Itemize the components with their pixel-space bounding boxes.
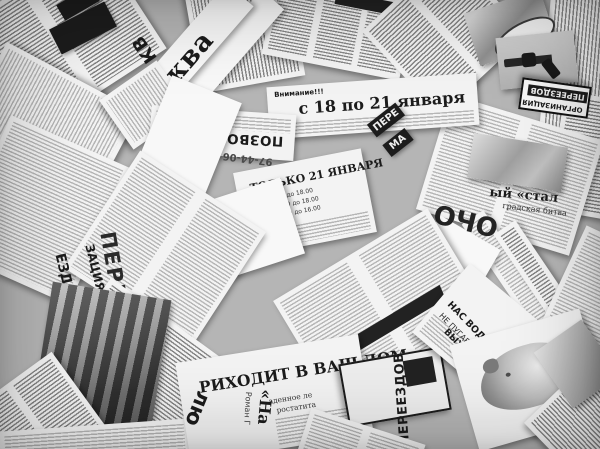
- dark-ad-label: МА: [388, 133, 409, 153]
- na-title-fragment: «На: [255, 389, 274, 426]
- revolver-grip: [541, 58, 561, 80]
- revolver-cylinder: [521, 52, 536, 67]
- newspaper-collage-photo: осква КВ ОРГАНИЗАЦИЯ ПЕРЕЕЗДОВ Внимание!…: [0, 0, 600, 449]
- roman-byline: Роман Г: [242, 392, 252, 426]
- dark-ad-fragment: МА: [382, 128, 413, 157]
